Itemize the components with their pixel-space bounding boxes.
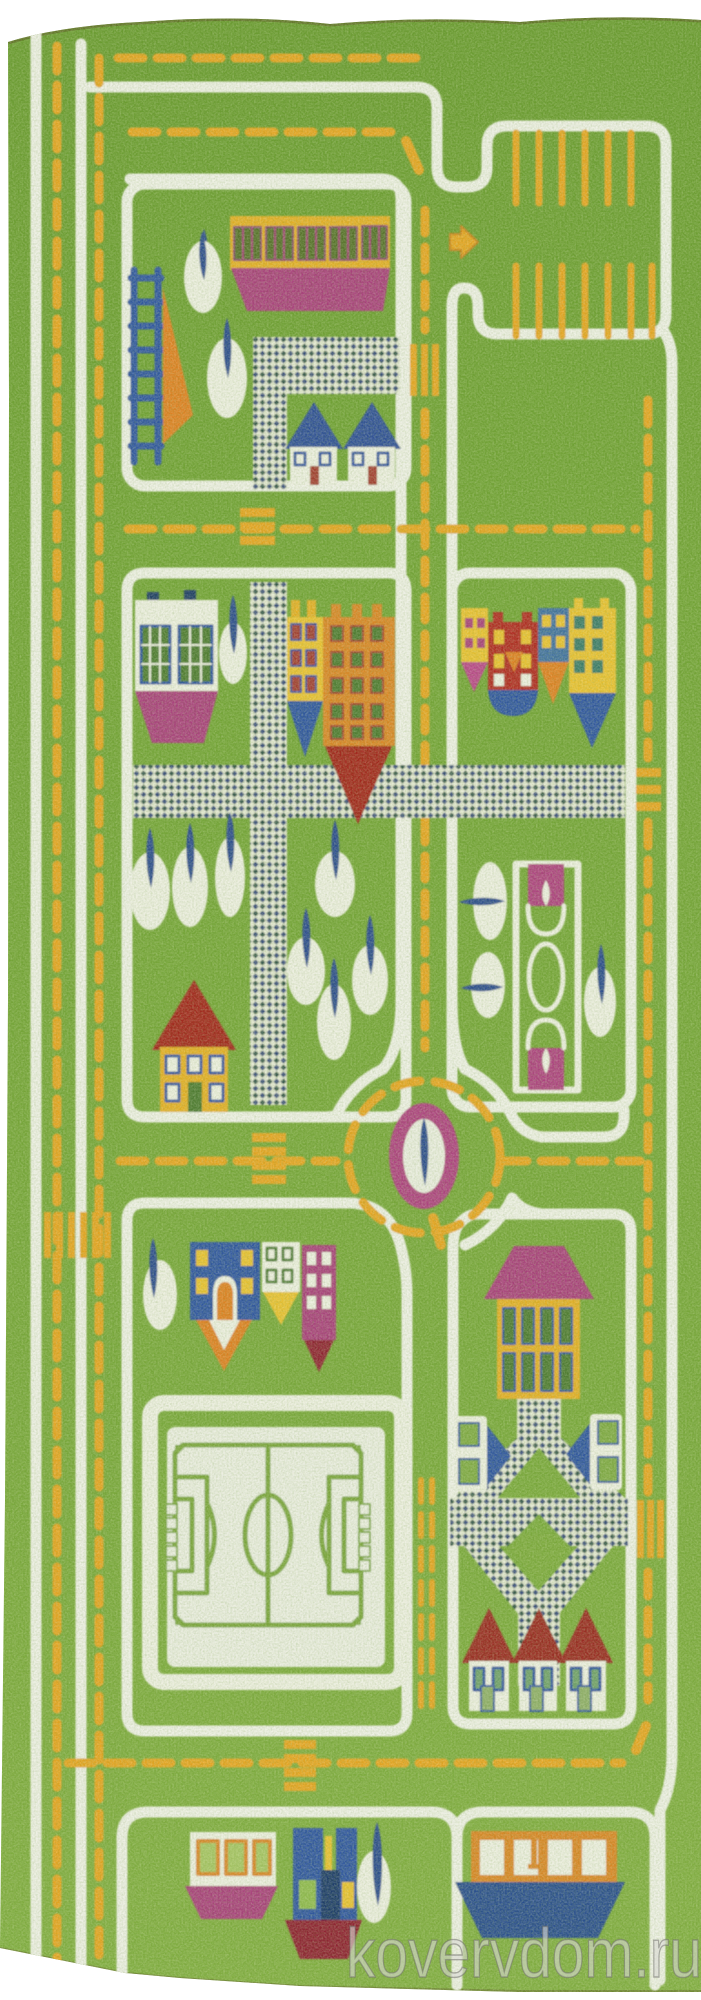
svg-text:kovervdom.ru: kovervdom.ru — [346, 1914, 701, 1992]
